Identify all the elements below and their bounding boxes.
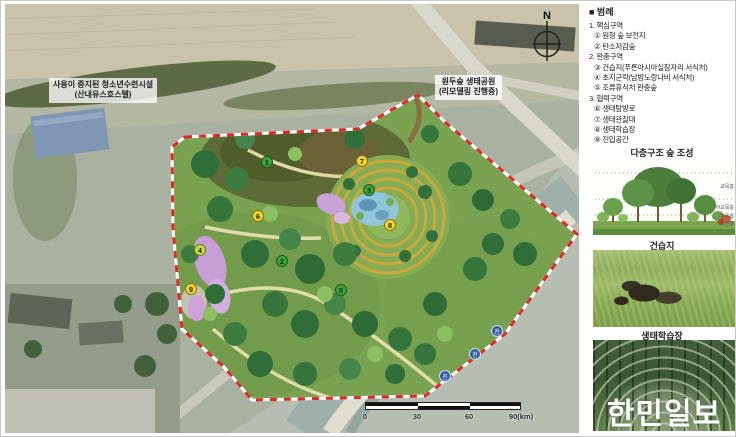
- map-marker-9: 9: [185, 283, 197, 295]
- newspaper-watermark: 한민일보: [593, 400, 735, 430]
- forest-layer-label-2: 관목층: [720, 213, 734, 220]
- river-marker-1: 천: [469, 348, 481, 360]
- map-marker-8: 8: [384, 219, 396, 231]
- river-marker-2: 천: [439, 370, 451, 382]
- scale-tick-0: 0: [363, 412, 367, 421]
- legend-row-10: ⑦ 생태관찰대: [589, 115, 735, 125]
- legend-row-7: ⑤ 조류휴식처 완충숲: [589, 83, 735, 93]
- north-arrow: N: [527, 11, 567, 66]
- legend-row-9: ⑥ 생태탐방로: [589, 104, 735, 114]
- scale-bar-segments: [365, 402, 521, 410]
- scale-tick-1: 30: [413, 412, 421, 421]
- legend-row-3: ② 탄소저감숲: [589, 42, 735, 52]
- legend-row-6: ④ 초지군락(남방노랑나비 서식처): [589, 73, 735, 83]
- landscape-plan-screenshot: 사용이 중지된 청소년수련시설 (산내유스호스텔) 원두숲 생태공원 (리모델링…: [0, 0, 736, 437]
- legend-row-5: ③ 건습지(푸른아시아실잠자리 서식처): [589, 63, 735, 73]
- compass-icon: [527, 21, 567, 61]
- legend-row-0: ■ 범례: [589, 5, 735, 18]
- legend-row-8: 3. 협력구역: [589, 94, 735, 104]
- annotation-eco-park: 원두숲 생태공원 (리모델링 진행중): [435, 75, 502, 100]
- legend-row-11: ⑧ 생태학습장: [589, 125, 735, 135]
- forest-layer-label-1: 아교목층: [716, 204, 734, 211]
- map-marker-7: 7: [356, 155, 368, 167]
- legend-row-12: ⑨ 진입공간: [589, 135, 735, 145]
- annotation-youth-hostel: 사용이 중지된 청소년수련시설 (산내유스호스텔): [49, 78, 157, 103]
- scale-tick-3: 90(km): [509, 412, 533, 421]
- forest-layer-label-0: 교목층: [720, 183, 734, 190]
- scale-bar: 0306090(km): [365, 402, 535, 428]
- map-marker-3: 3: [363, 184, 375, 196]
- aerial-photo-background: [5, 4, 579, 433]
- forest-layer-label-3: 초본층: [720, 220, 734, 227]
- scale-tick-2: 60: [465, 412, 473, 421]
- north-label: N: [527, 11, 567, 21]
- lower-left-buildings: [5, 284, 180, 433]
- map-marker-5: 5: [335, 284, 347, 296]
- multilayer-forest-illustration: 교목층아교목층관목층초본층: [593, 159, 735, 237]
- site-plan-map: 사용이 중지된 청소년수련시설 (산내유스호스텔) 원두숲 생태공원 (리모델링…: [5, 4, 579, 433]
- map-marker-2: 2: [276, 255, 288, 267]
- legend-row-2: ① 원형 숲 보전지: [589, 31, 735, 41]
- legend-row-1: 1. 핵심구역: [589, 21, 735, 31]
- wetland-photo: [593, 250, 735, 327]
- map-marker-1: 1: [261, 156, 273, 168]
- map-marker-4: 4: [194, 244, 206, 256]
- legend-row-4: 2. 완충구역: [589, 52, 735, 62]
- river-marker-0: 천: [491, 325, 503, 337]
- forest-section-title: 다층구조 숲 조성: [589, 146, 735, 159]
- eco-learning-photo: 한민일보: [593, 340, 735, 431]
- legend: ■ 범례1. 핵심구역① 원형 숲 보전지② 탄소저감숲2. 완충구역③ 건습지…: [589, 5, 735, 146]
- map-marker-6: 6: [252, 210, 264, 222]
